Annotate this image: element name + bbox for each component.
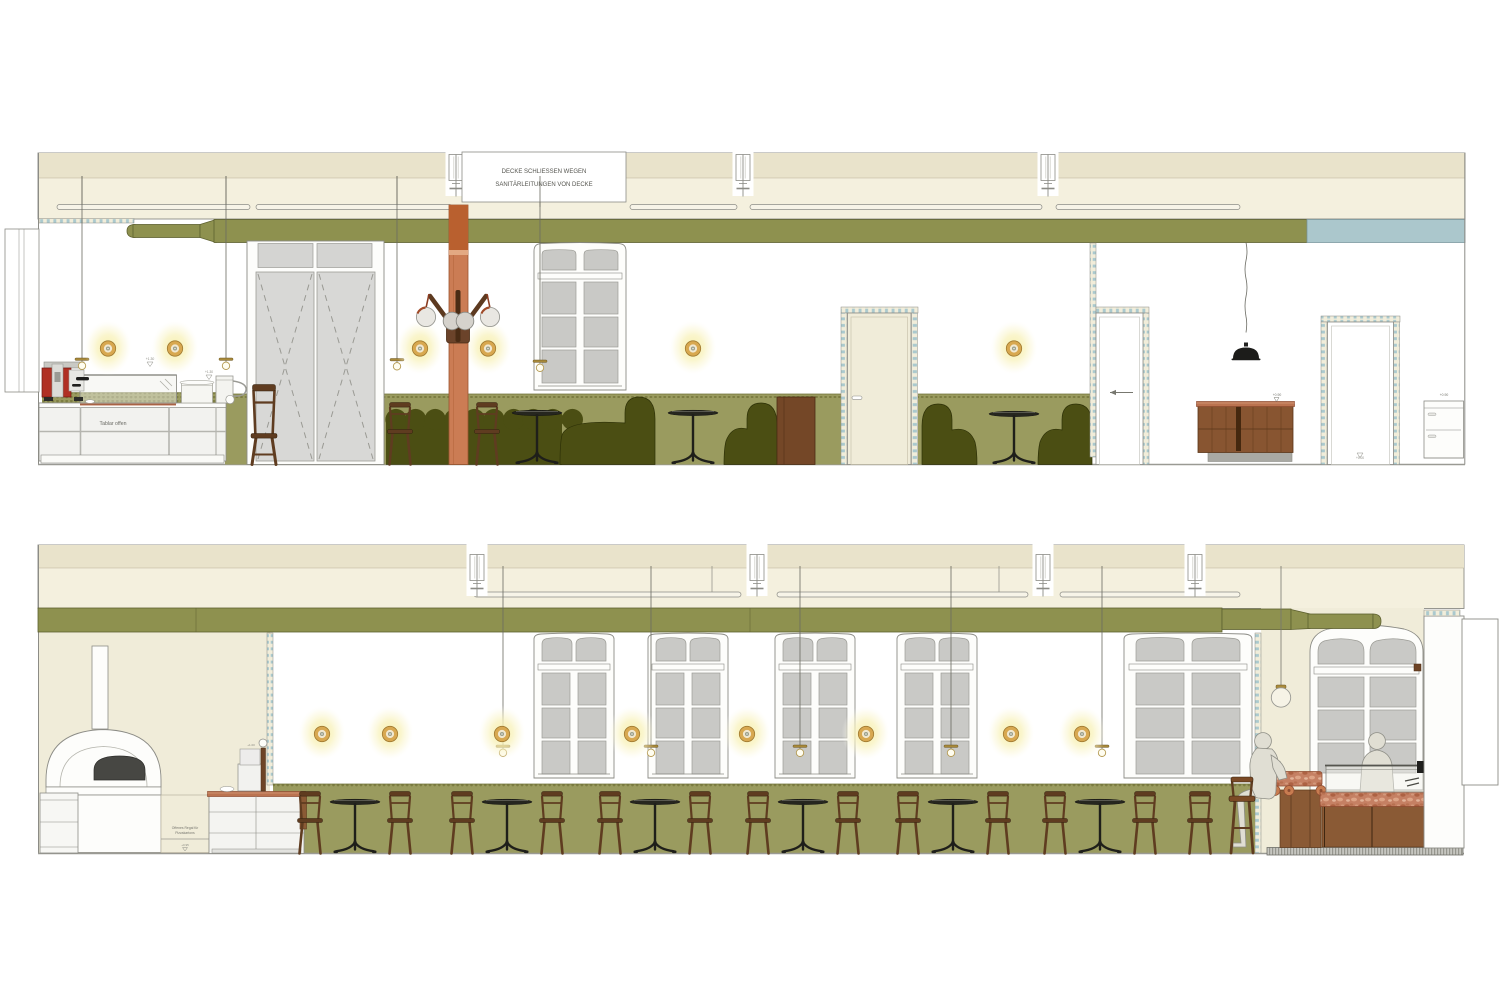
svg-text:+0.95: +0.95 [181, 843, 189, 847]
svg-text:DECKE SCHLIESSEN WEGEN: DECKE SCHLIESSEN WEGEN [502, 169, 587, 175]
svg-text:Pizzakartons: Pizzakartons [175, 831, 195, 835]
svg-text:+0.90: +0.90 [1440, 393, 1449, 397]
svg-text:Tablar offen: Tablar offen [99, 421, 126, 427]
svg-text:Offenes Regal für: Offenes Regal für [172, 826, 199, 830]
svg-text:+1.30: +1.30 [205, 370, 213, 374]
svg-text:+0.90: +0.90 [1273, 393, 1282, 397]
svg-text:SANITÄRLEITUNGEN VON DECKE: SANITÄRLEITUNGEN VON DECKE [495, 181, 592, 188]
svg-text:+0.00: +0.00 [1356, 456, 1364, 460]
svg-text:+1.00: +1.00 [247, 743, 255, 747]
